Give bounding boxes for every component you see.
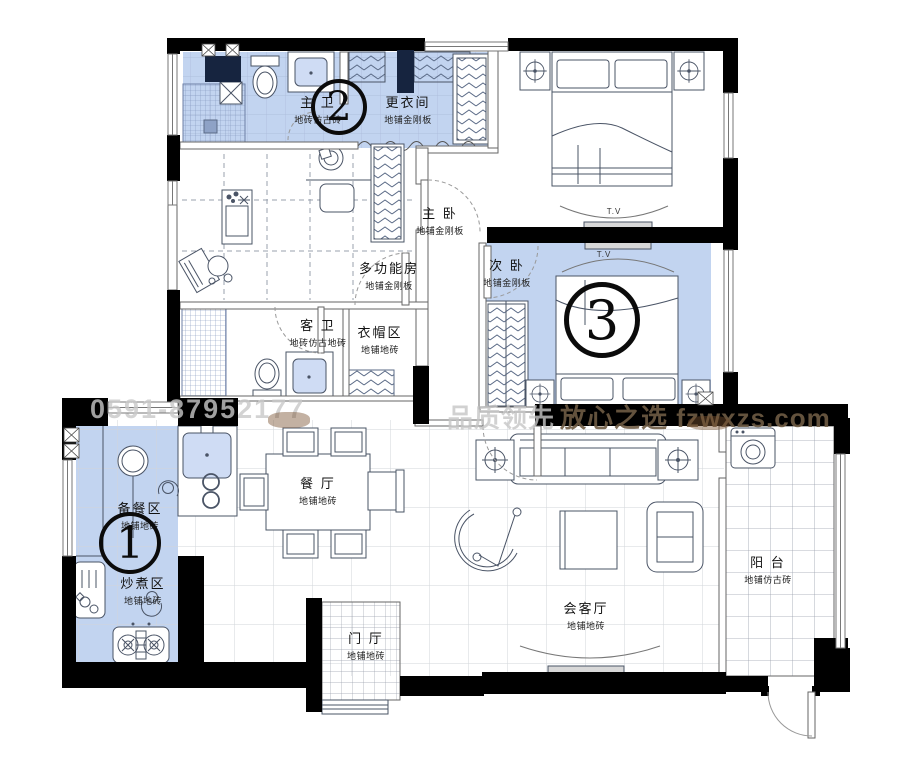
wardrobe-icon	[371, 144, 404, 242]
window	[168, 54, 177, 135]
label-dressing: 更衣间 地铺金刚板	[384, 92, 432, 126]
toilet-icon	[251, 56, 279, 98]
armchair-icon	[647, 502, 703, 572]
label-hall: 门 厅 地铺地砖	[347, 628, 385, 662]
window	[724, 250, 733, 372]
marker-circle-1: 1	[99, 512, 161, 574]
watermark-smudge	[688, 416, 730, 430]
coffee-table-icon	[560, 511, 617, 569]
marker-number: 3	[585, 289, 619, 352]
window	[724, 93, 733, 158]
marker-circle-3: 3	[564, 282, 640, 358]
label-master-bedroom: 主 卧 地铺金刚板	[416, 203, 464, 237]
wardrobe-icon	[485, 301, 528, 409]
label-second-bedroom: 次 卧 地铺金刚板	[483, 255, 531, 289]
label-guest-bath: 客 卫 地砖仿古地砖	[289, 315, 346, 349]
door-balcony-exit	[768, 692, 815, 738]
label-living: 会客厅 地铺地砖	[563, 598, 608, 632]
vent-box-icon	[220, 82, 242, 104]
tea-table-icon	[222, 190, 252, 244]
label-multi-room: 多功能房 地铺金刚板	[359, 258, 419, 292]
sink-icon	[286, 352, 333, 400]
shoe-cabinet-icon	[322, 700, 388, 714]
watermark-slogan-left: 品质领先	[447, 398, 555, 435]
window	[168, 181, 177, 205]
floor-plan: 主 卫 地砖仿古砖 更衣间 地铺金刚板 主 卧 地铺金刚板 多功能房 地铺金刚板…	[0, 0, 900, 784]
stove-icon	[113, 623, 169, 664]
window	[425, 42, 508, 51]
window	[836, 454, 845, 648]
tv-label: T.V	[607, 207, 622, 216]
marker-number: 1	[116, 518, 144, 569]
master-bed-icon	[552, 52, 672, 186]
tv-label: T.V	[597, 250, 612, 259]
marker-number: 2	[326, 84, 351, 130]
wardrobe-icon	[453, 54, 490, 144]
kitchen-sink-icon	[74, 562, 105, 618]
label-cook-area: 炒煮区 地铺地砖	[120, 573, 165, 607]
label-dining: 餐 厅 地铺地砖	[299, 473, 337, 507]
watermark-smudge	[268, 412, 310, 428]
marker-circle-2: 2	[311, 79, 367, 135]
label-balcony: 阳 台 地铺仿古砖	[744, 552, 792, 586]
window	[63, 460, 72, 556]
label-cloak-area: 衣帽区 地铺地砖	[357, 322, 402, 356]
sofa-icon	[510, 434, 666, 484]
floor-plan-drawing	[0, 0, 900, 784]
